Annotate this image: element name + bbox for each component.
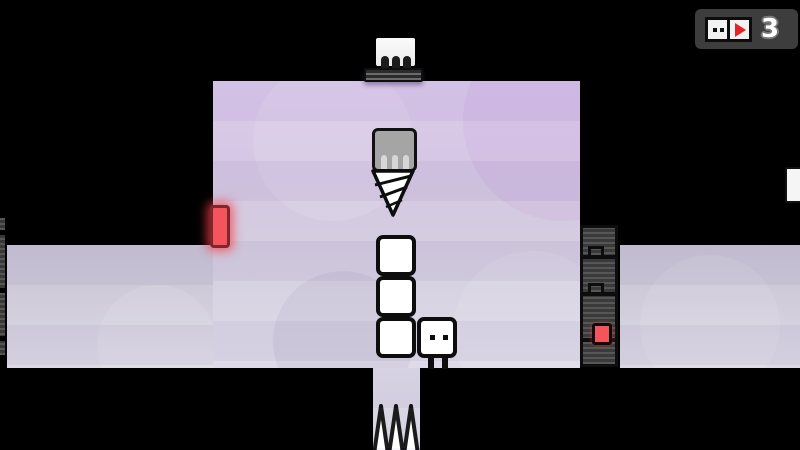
hud-box-frame (705, 17, 752, 42)
pit-shaft (373, 368, 420, 450)
character-eye-icon (430, 335, 435, 340)
background-circle (97, 285, 213, 368)
block-seam (0, 230, 5, 235)
spikes-hazard (373, 400, 420, 450)
play-area-left (7, 245, 213, 368)
dispenser-base (364, 68, 423, 82)
play-triangle-icon (735, 23, 746, 37)
character-eye-icon (443, 335, 448, 340)
red-switch (592, 323, 612, 345)
background-circle (640, 255, 780, 368)
block-tab-icon (588, 283, 604, 292)
red-door (210, 205, 230, 248)
face-eye-icon (720, 28, 724, 32)
character-leg-icon (442, 356, 448, 369)
block-seam (580, 292, 618, 296)
player-character[interactable] (417, 317, 457, 358)
edge-block-strip (0, 218, 5, 355)
hud-play-icon (727, 17, 752, 42)
block-seam (0, 336, 5, 341)
hud-box-count: 3 (761, 16, 779, 42)
drill-bit-icon (369, 169, 417, 218)
character-leg-icon (428, 356, 434, 369)
hud-panel: 3 (695, 9, 798, 49)
face-eye-icon (713, 28, 717, 32)
box-block (376, 235, 416, 276)
drill-tooth-icon (403, 155, 409, 169)
block-tab-icon (588, 246, 604, 255)
drill-tooth-icon (392, 155, 398, 169)
background-circle (463, 81, 580, 221)
drill-tooth-icon (381, 155, 387, 169)
box-block (376, 276, 416, 317)
drill-body (372, 128, 417, 172)
offscreen-box (785, 167, 800, 203)
box-block (376, 317, 416, 358)
block-seam (0, 288, 5, 293)
background-circle (453, 251, 580, 368)
block-seam (580, 255, 618, 259)
play-area-right (620, 245, 800, 368)
crash-block-column (580, 225, 618, 367)
